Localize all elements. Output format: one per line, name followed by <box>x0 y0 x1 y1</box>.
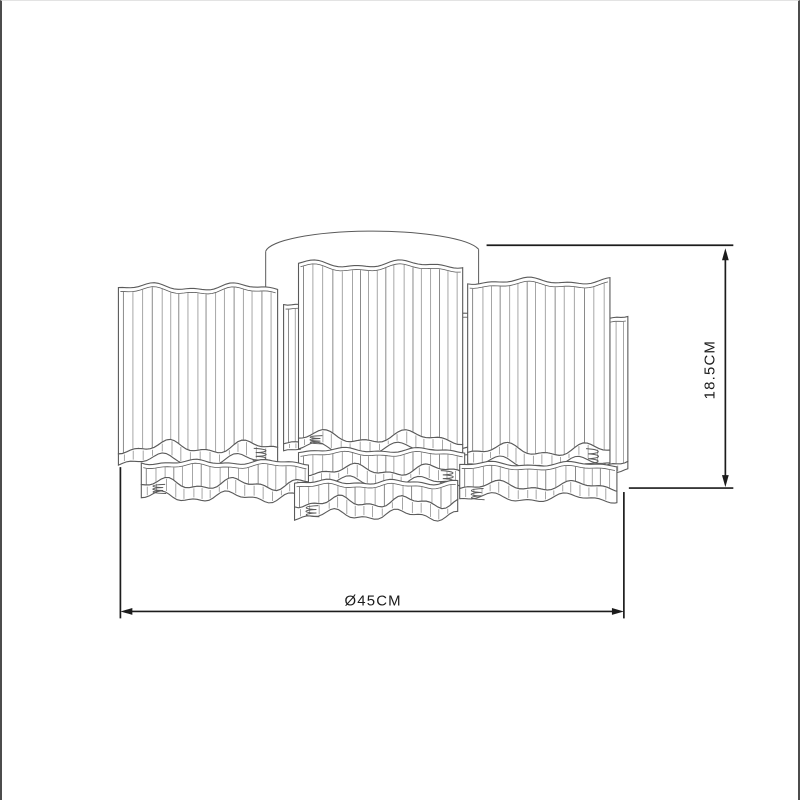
diameter-dimension-label: Ø45CM <box>344 592 401 609</box>
back-strip-left <box>284 304 301 450</box>
front-shade-right <box>460 461 617 503</box>
page-frame: Ø45CM 18.5CM <box>0 0 800 800</box>
front-shade-left <box>141 459 308 503</box>
ceiling-lamp-sketch <box>118 231 627 521</box>
height-dimension-label: 18.5CM <box>701 340 718 399</box>
shade-center <box>299 260 463 456</box>
dimension-arrow-right-icon <box>612 608 624 615</box>
shade-left <box>118 283 277 465</box>
lamp-technical-drawing: Ø45CM 18.5CM <box>2 1 798 799</box>
dimension-arrow-down-icon <box>722 475 729 487</box>
front-shade-bottom <box>295 479 458 521</box>
dimension-arrow-up-icon <box>722 248 729 260</box>
dimension-arrow-left-icon <box>120 608 132 615</box>
shade-right <box>468 277 610 468</box>
